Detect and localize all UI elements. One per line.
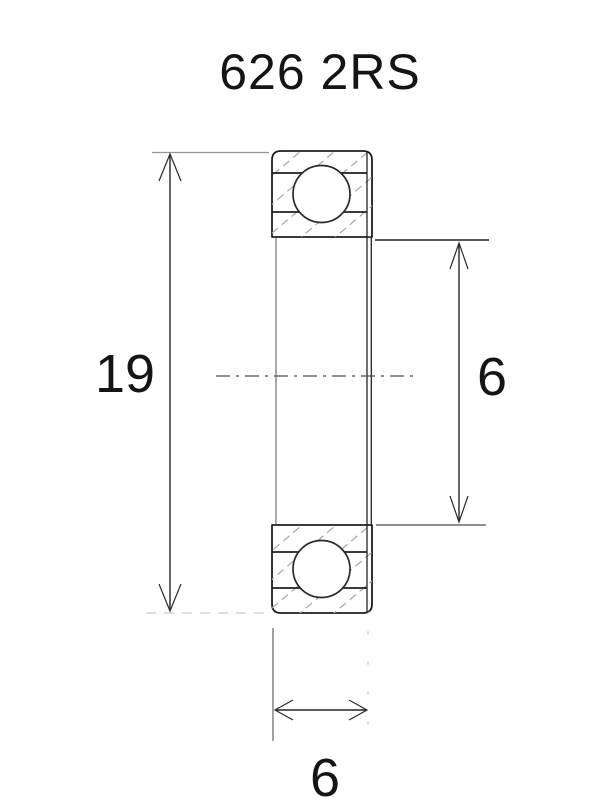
dimension-bore-diameter [375,240,489,525]
width-value: 6 [310,751,340,805]
outer-diameter-value: 19 [95,347,155,401]
bearing-drawing-page: 626 2RS 19 6 6 [0,0,600,810]
ball-bottom-circle [293,541,350,598]
drawing-title: 626 2RS [219,47,421,97]
dimension-width [273,628,368,741]
bore-diameter-value: 6 [477,350,507,404]
bearing-cross-section-drawing [0,0,600,810]
bearing-bottom-section [150,515,484,625]
bearing-top-section [150,140,484,250]
ball-top-circle [293,166,350,223]
bore-section [276,237,371,525]
dimension-outer-diameter [146,153,269,614]
